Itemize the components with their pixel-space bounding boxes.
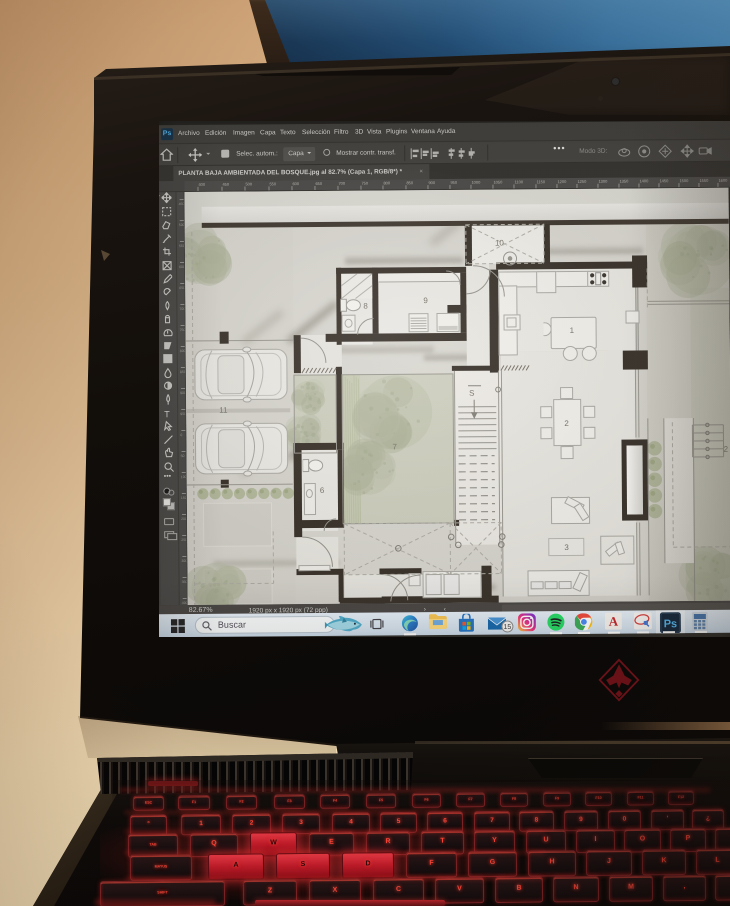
svg-text:A: A: [609, 614, 619, 629]
svg-text:Ps: Ps: [664, 618, 678, 630]
svg-text:15: 15: [504, 624, 512, 631]
